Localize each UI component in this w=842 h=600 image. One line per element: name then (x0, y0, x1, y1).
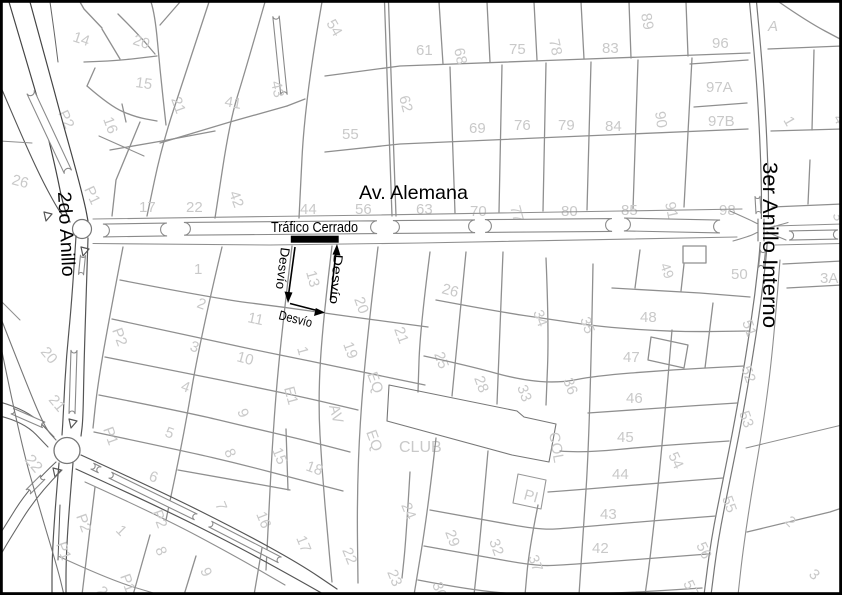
svg-text:55: 55 (342, 126, 359, 143)
svg-text:78: 78 (545, 37, 565, 57)
svg-text:96: 96 (712, 35, 729, 52)
svg-text:43: 43 (267, 79, 287, 99)
svg-text:70: 70 (470, 203, 487, 220)
svg-text:A: A (767, 18, 778, 35)
svg-text:46: 46 (626, 390, 643, 407)
svg-text:2do Anillo: 2do Anillo (53, 191, 78, 277)
svg-text:75: 75 (509, 41, 526, 58)
svg-text:3er Anillo Interno: 3er Anillo Interno (758, 162, 781, 328)
svg-text:Tráfico Cerrado: Tráfico Cerrado (271, 220, 358, 236)
svg-text:97B: 97B (708, 113, 735, 130)
svg-text:1: 1 (194, 261, 202, 278)
svg-text:69: 69 (469, 120, 486, 137)
svg-text:45: 45 (617, 429, 634, 446)
svg-text:48: 48 (640, 309, 657, 326)
svg-text:61: 61 (416, 42, 433, 59)
svg-text:22: 22 (186, 199, 203, 216)
svg-text:90: 90 (651, 110, 670, 129)
svg-text:17: 17 (139, 199, 156, 216)
svg-text:47: 47 (623, 349, 640, 366)
svg-text:50: 50 (731, 266, 748, 283)
svg-text:15: 15 (134, 74, 153, 93)
svg-text:76: 76 (514, 117, 531, 134)
svg-text:84: 84 (605, 118, 622, 135)
svg-text:79: 79 (558, 117, 575, 134)
svg-text:89: 89 (637, 12, 657, 31)
svg-text:43: 43 (600, 506, 617, 523)
svg-text:41: 41 (223, 93, 242, 113)
svg-text:42: 42 (592, 540, 609, 557)
svg-text:Av. Alemana: Av. Alemana (359, 182, 468, 204)
svg-text:3A: 3A (820, 270, 838, 287)
svg-text:83: 83 (602, 40, 619, 57)
svg-text:44: 44 (612, 466, 629, 483)
svg-text:97A: 97A (706, 79, 733, 96)
svg-text:68: 68 (450, 46, 470, 66)
svg-text:98: 98 (719, 202, 736, 219)
